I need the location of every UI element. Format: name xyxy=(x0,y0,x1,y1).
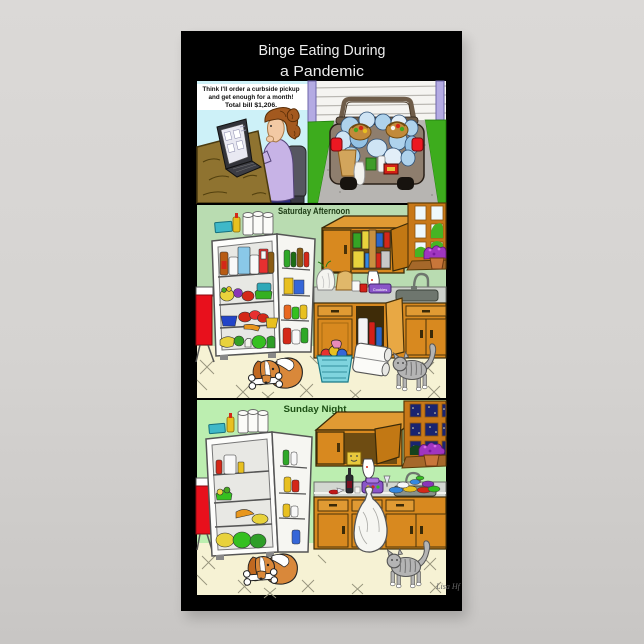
svg-text:Think I'll order a curbside pi: Think I'll order a curbside pickup xyxy=(203,86,300,93)
svg-text:Total bill $1,206.: Total bill $1,206. xyxy=(225,102,277,109)
svg-text:Cookies: Cookies xyxy=(373,287,387,292)
svg-text:Binge Eating During: Binge Eating During xyxy=(259,42,386,59)
svg-text:a Pandemic: a Pandemic xyxy=(280,63,365,80)
svg-text:and get enough for a month!: and get enough for a month! xyxy=(209,94,294,101)
svg-text:Saturday Afternoon: Saturday Afternoon xyxy=(278,206,350,216)
svg-text:Lisa Hf: Lisa Hf xyxy=(435,582,462,591)
